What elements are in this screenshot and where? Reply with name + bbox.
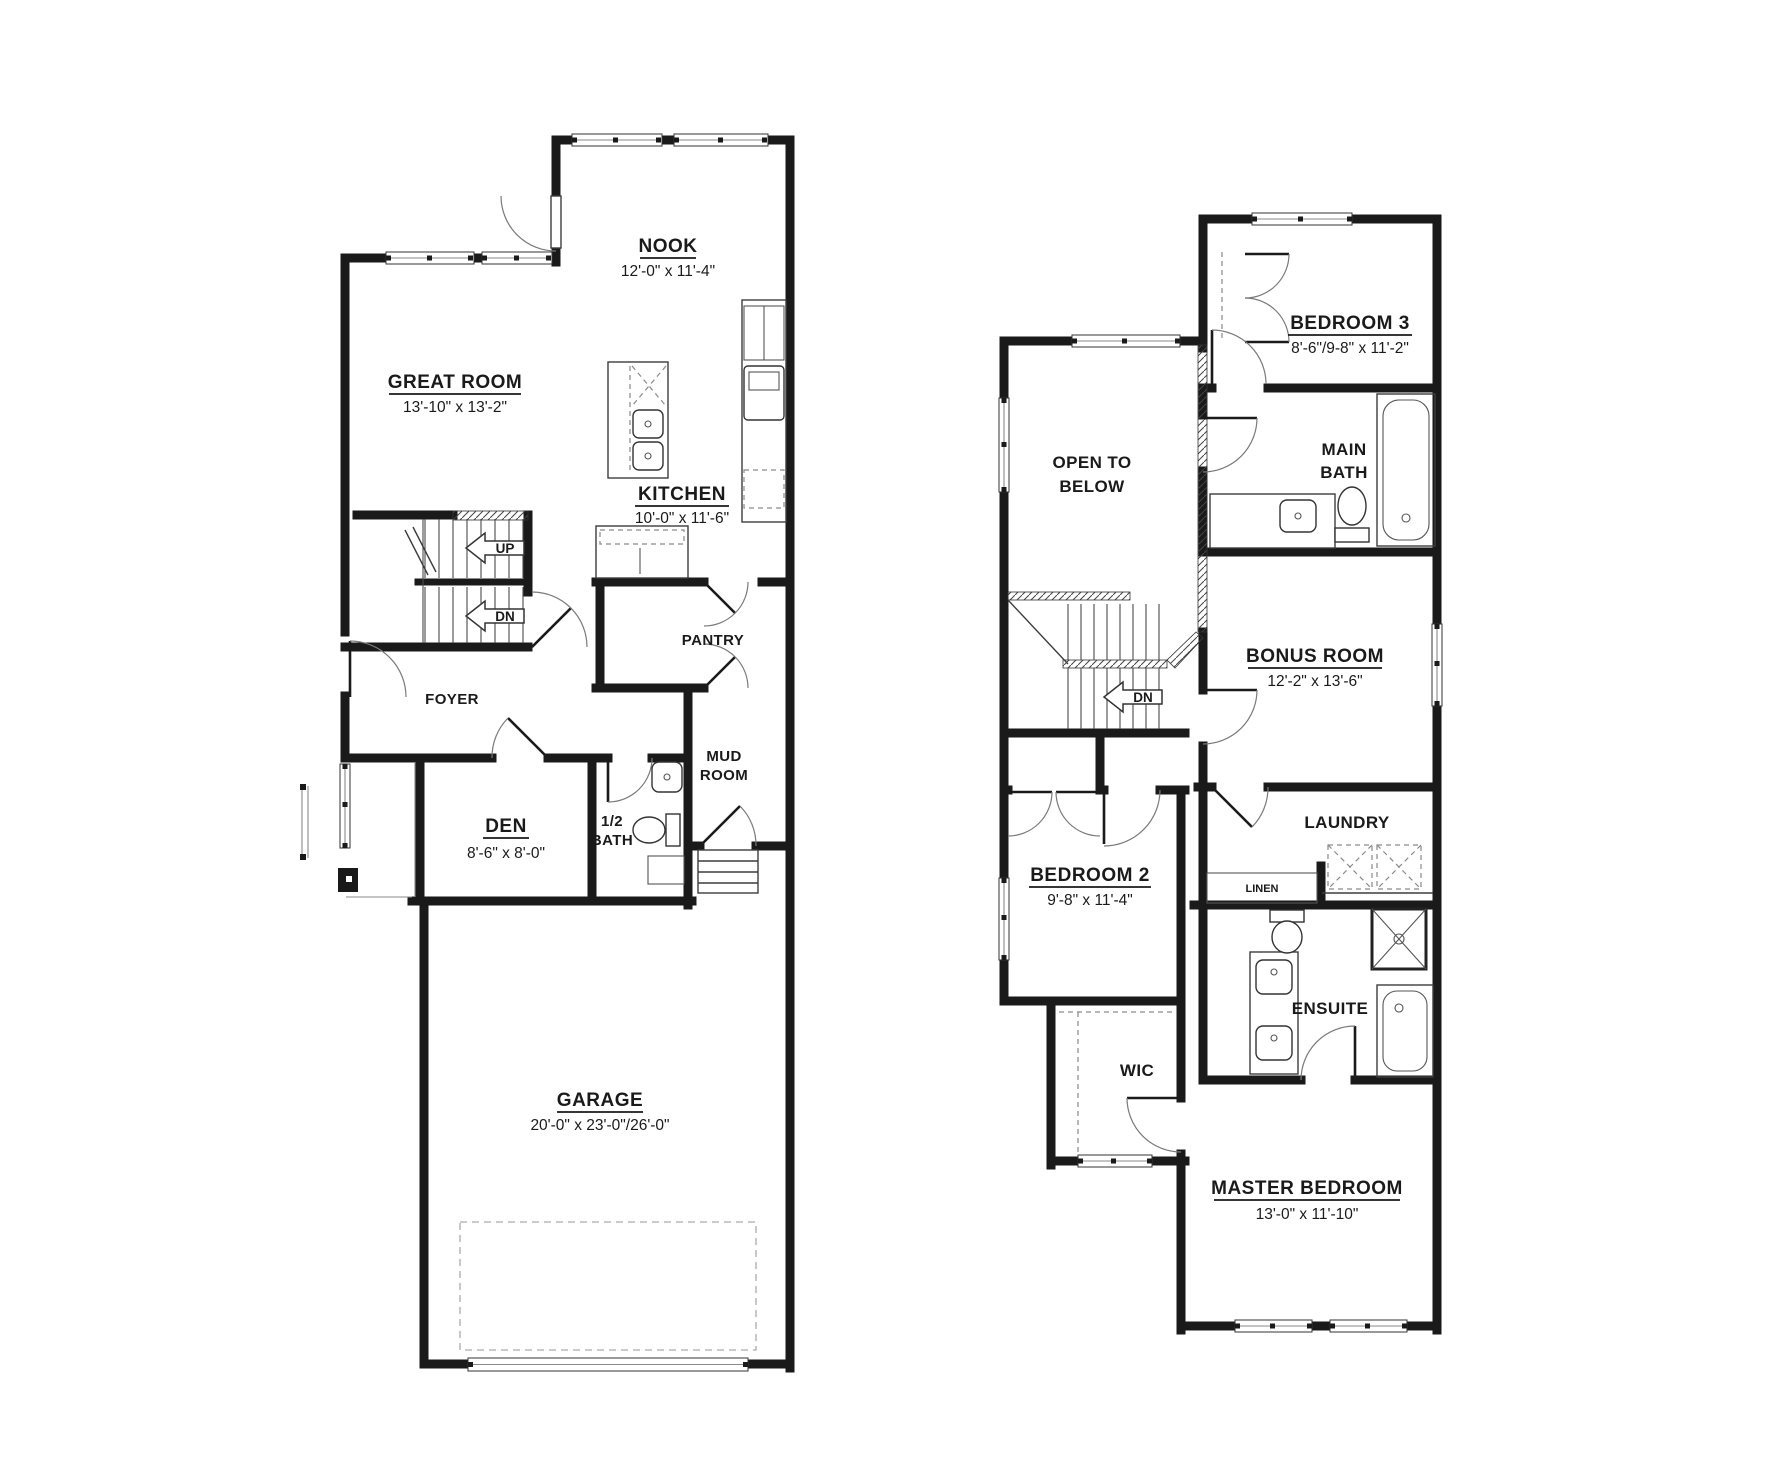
wic-door — [1127, 1098, 1181, 1152]
toilet-bowl — [633, 817, 665, 843]
master-window-2 — [1330, 1320, 1407, 1332]
bedroom2-dims: 9'-8" x 11'-4" — [1047, 892, 1133, 909]
main-floor-plan: UP DN — [300, 134, 790, 1371]
half-bath-fixtures — [633, 762, 684, 884]
floorplan-canvas: UP DN — [0, 0, 1780, 1480]
nook-window-1 — [572, 134, 662, 146]
kitchen-label: KITCHEN — [638, 484, 726, 505]
main-bath-door — [1203, 418, 1257, 472]
main-bath-toilet-tank — [1335, 528, 1369, 542]
den-window — [340, 764, 350, 848]
main-bath-sink — [1280, 500, 1316, 532]
garage-door-dashed-zone — [460, 1222, 756, 1350]
master-bedroom-dims: 13'-0" x 11'-10" — [1256, 1206, 1359, 1223]
master-bedroom-label: MASTER BEDROOM — [1211, 1178, 1403, 1199]
basement-stair-door — [532, 592, 587, 647]
nook-patio-door — [501, 196, 561, 251]
bedroom3-window — [1252, 213, 1352, 225]
garage-label: GARAGE — [557, 1090, 643, 1111]
ensuite-fixtures — [1250, 909, 1433, 1077]
bath-cabinet — [648, 856, 684, 884]
stair-break-line — [405, 527, 436, 575]
pantry-label: PANTRY — [682, 632, 744, 649]
kitchen-fixtures — [596, 300, 786, 578]
main-bath-toilet-bowl — [1338, 487, 1366, 525]
garage-door — [468, 1358, 748, 1371]
great-room-window-1 — [386, 252, 474, 264]
nook-dims: 12'-0" x 11'-4" — [621, 263, 715, 280]
main-bath-label-2: BATH — [1320, 463, 1368, 482]
bedroom3-door — [1212, 330, 1266, 384]
bedroom2-door — [1104, 790, 1160, 846]
nook-label: NOOK — [639, 236, 698, 257]
upper-floor-plan: DN — [999, 213, 1442, 1332]
upper-floor-walls — [1004, 219, 1437, 1330]
stair-up-label: UP — [496, 541, 515, 556]
great-room-window-2 — [482, 252, 552, 264]
pantry-door-lower — [704, 644, 748, 688]
mud-room-label-1: MUD — [706, 748, 741, 765]
sink-basin-1 — [633, 410, 663, 438]
bonus-room-window — [1432, 624, 1442, 706]
half-bath-door — [608, 758, 652, 802]
great-room-dims: 13'-10" x 13'-2" — [403, 399, 507, 416]
bedroom2-window — [999, 878, 1009, 960]
porch-details — [300, 762, 415, 897]
great-room-label: GREAT ROOM — [388, 372, 522, 393]
garage-dims: 20'-0" x 23'-0"/26'-0" — [530, 1117, 669, 1134]
ensuite-toilet-tank — [1270, 910, 1304, 922]
bonus-room-dims: 12'-2" x 13'-6" — [1267, 673, 1362, 690]
open-below-window-left — [999, 398, 1009, 492]
ensuite-toilet-bowl — [1272, 921, 1302, 953]
den-door — [492, 718, 548, 758]
open-below-window-top — [1072, 335, 1180, 347]
half-bath-label-2: BATH — [591, 832, 633, 849]
ensuite-sink-1 — [1256, 960, 1292, 994]
garage-entry-door — [700, 806, 756, 846]
bedroom2-label: BEDROOM 2 — [1030, 865, 1150, 886]
ensuite-label: ENSUITE — [1292, 999, 1368, 1018]
dishwasher — [744, 470, 784, 508]
wic-label: WIC — [1120, 1061, 1154, 1080]
toilet-tank — [666, 814, 680, 846]
main-bath-label-1: MAIN — [1321, 440, 1366, 459]
master-window-1 — [1235, 1320, 1312, 1332]
ensuite-door — [1301, 1026, 1355, 1080]
half-bath-sink — [652, 762, 682, 792]
stove — [744, 366, 784, 420]
pantry-door-upper — [704, 582, 748, 626]
kitchen-island — [608, 362, 668, 478]
upper-stair-down-label: DN — [1133, 690, 1153, 705]
linen-label: LINEN — [1246, 883, 1279, 895]
bedroom3-dims: 8'-6"/9-8" x 11'-2" — [1291, 340, 1409, 357]
bedroom2-closet-doors — [1008, 792, 1100, 836]
bedroom3-label: BEDROOM 3 — [1290, 313, 1410, 334]
floorplan-drawing: UP DN — [0, 0, 1780, 1480]
wic-shelves — [1059, 1012, 1175, 1152]
garage-steps — [698, 850, 758, 893]
kitchen-peninsula — [596, 526, 688, 578]
sink-basin-2 — [633, 442, 663, 470]
bedroom3-closet-doors — [1222, 252, 1289, 342]
main-bath-tub — [1377, 394, 1435, 546]
stair-down-label: DN — [495, 609, 515, 624]
nook-window-2 — [674, 134, 768, 146]
bonus-room-label: BONUS ROOM — [1246, 646, 1384, 667]
shower — [1372, 909, 1426, 969]
ensuite-sink-2 — [1256, 1026, 1292, 1060]
foyer-label: FOYER — [425, 691, 479, 708]
mud-room-label-2: ROOM — [700, 767, 748, 784]
den-label: DEN — [485, 816, 527, 837]
half-bath-label-1: 1/2 — [601, 813, 623, 830]
upper-floor-labels: OPEN TO BELOW BEDROOM 3 8'-6"/9-8" x 11'… — [1029, 313, 1412, 1223]
ensuite-tub — [1377, 985, 1433, 1077]
open-below-label-1: OPEN TO — [1052, 453, 1131, 472]
laundry-label: LAUNDRY — [1304, 813, 1390, 832]
den-dims: 8'-6" x 8'-0" — [467, 845, 545, 862]
laundry-door — [1212, 787, 1268, 827]
wic-window — [1078, 1155, 1152, 1167]
kitchen-dims: 10'-0" x 11'-6" — [635, 510, 729, 527]
bonus-room-door — [1203, 690, 1257, 744]
open-below-label-2: BELOW — [1059, 477, 1125, 496]
stair-hatch-wall — [453, 511, 528, 520]
